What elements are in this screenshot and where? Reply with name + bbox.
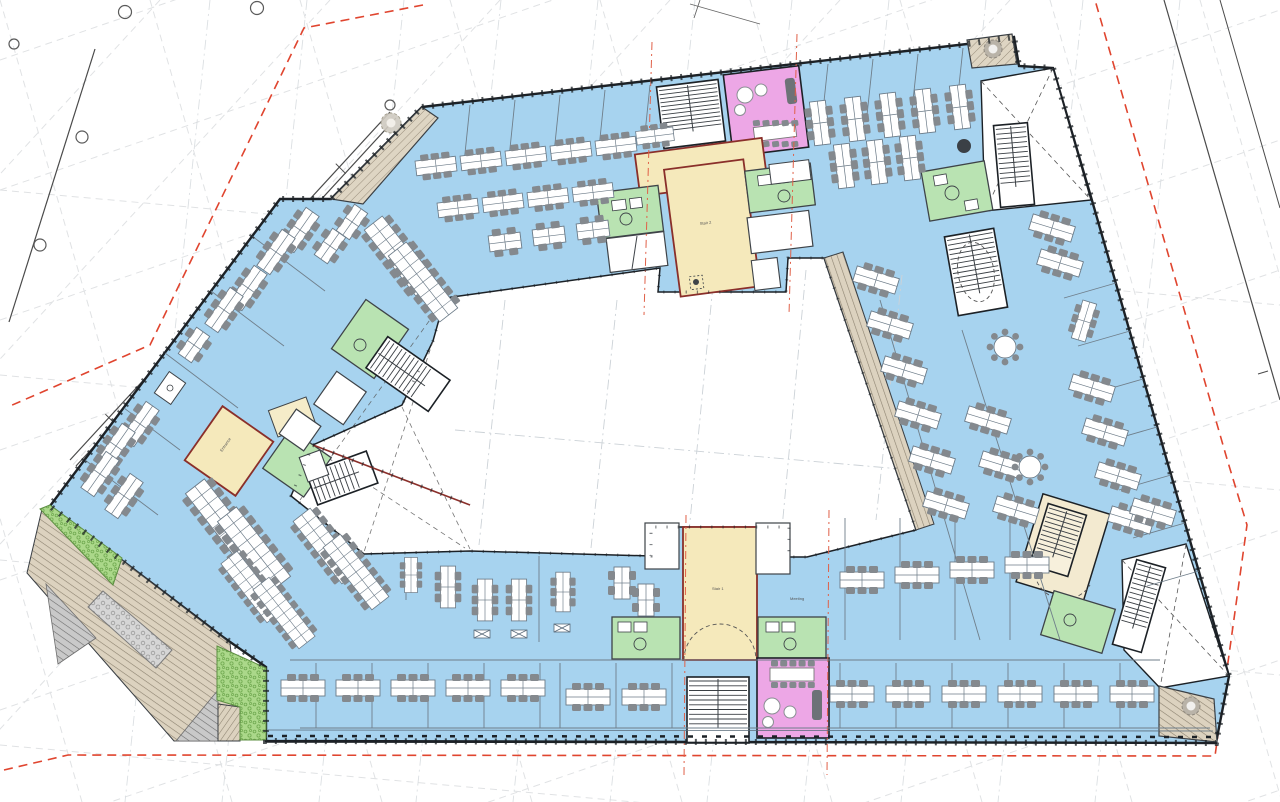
svg-text:Stair 1: Stair 1 <box>712 586 724 591</box>
svg-text:Meeting: Meeting <box>790 596 804 601</box>
